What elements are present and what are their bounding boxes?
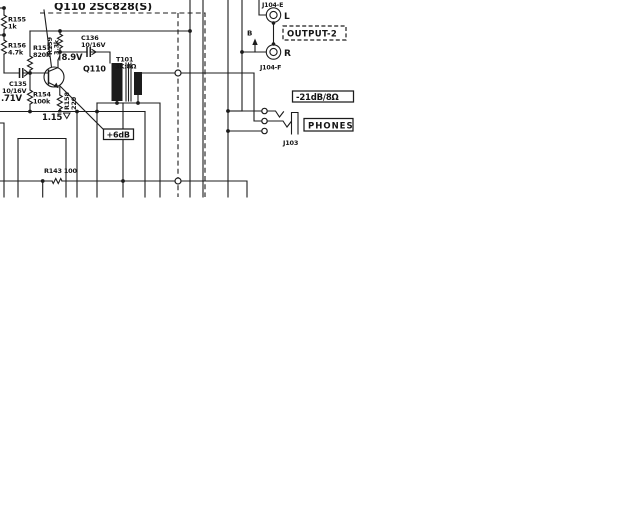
voltage-emitter: 1.15: [42, 113, 62, 123]
common-rails: [0, 103, 160, 197]
label-r159-value: 3.3k: [53, 39, 61, 55]
label-r154-value: 100k: [33, 98, 51, 106]
voltage-collector: 8.9V: [62, 53, 83, 63]
label-jack-r: R: [284, 49, 291, 59]
label-j104e: J104-E: [261, 2, 283, 9]
label-r155-value: 1k: [8, 23, 17, 31]
jack-r-symbol: [266, 45, 280, 59]
title-q110: Q110 2SC828(S): [54, 0, 152, 13]
schematic-canvas: Q110 2SC828(S) R155 1k R156 4.7k R157 82…: [0, 0, 640, 512]
jack-l-symbol: [266, 8, 280, 22]
label-r158-value: 220: [70, 96, 78, 110]
label-q110: Q110: [83, 65, 106, 74]
label-j104f: J104-F: [259, 65, 281, 72]
bias-network-wires: [0, 8, 190, 112]
label-point-b: B: [247, 30, 252, 38]
schematic-page: Q110 2SC828(S) R155 1k R156 4.7k R157 82…: [0, 0, 640, 512]
label-c136-value: 10/16V: [81, 41, 105, 49]
label-r143: R143 100: [44, 167, 77, 175]
level-callout-text: -21dB/8Ω: [296, 93, 339, 103]
voltage-base: .71V: [1, 94, 22, 104]
phones-label-text: PHONES: [308, 121, 354, 131]
bus-wires: [190, 0, 242, 197]
gain-callout-text: +6dB: [107, 131, 130, 140]
label-jack-l: L: [284, 12, 290, 22]
measure-point-triangle: [64, 113, 71, 119]
direction-arrow-up: [252, 39, 257, 46]
label-r156-value: 4.7k: [8, 49, 24, 57]
output2-label-text: OUTPUT-2: [287, 30, 337, 40]
label-j103: J103: [282, 139, 298, 147]
phones-jack-symbol: [262, 108, 298, 134]
label-t101-value: 3K:8Ω: [115, 63, 137, 71]
